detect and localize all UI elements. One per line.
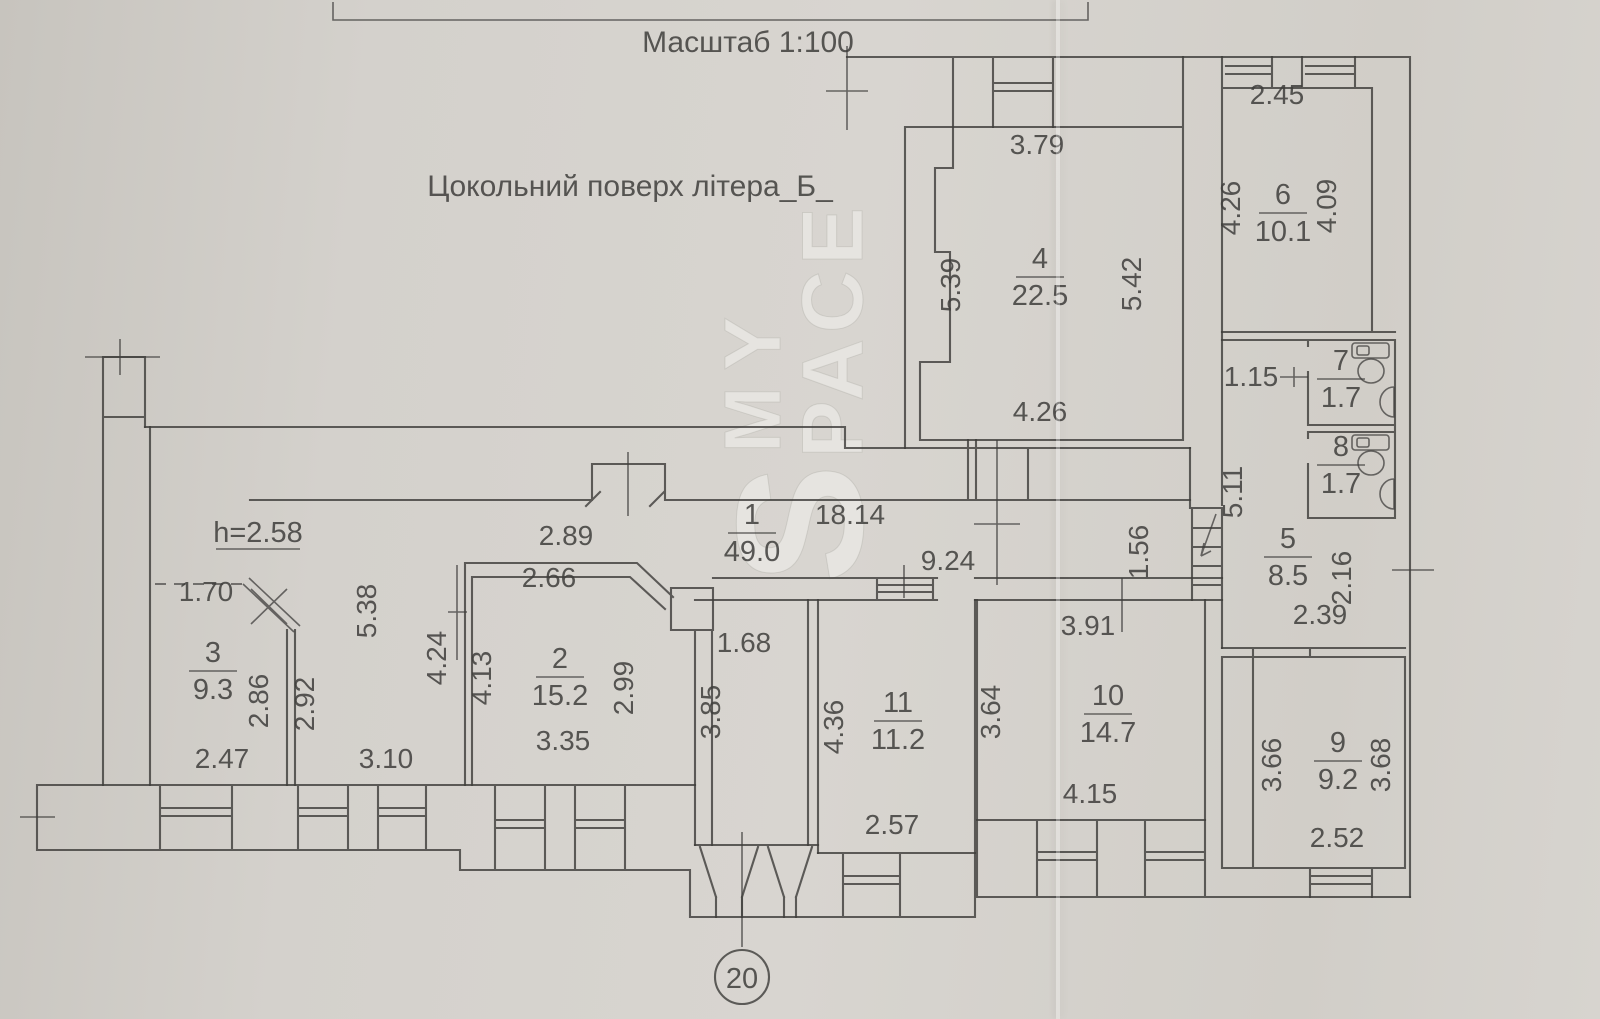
room-area: 11.2: [871, 724, 925, 756]
room-area: 8.5: [1268, 560, 1308, 592]
dimension-label: 4.09: [1311, 179, 1342, 234]
chimney-flues: [695, 845, 818, 917]
room-area: 14.7: [1080, 717, 1136, 749]
scale-title: Масштаб 1:100: [642, 26, 854, 59]
dimension-label: 9.24: [921, 545, 976, 576]
room-area: 9.3: [193, 674, 233, 706]
dimension-label: 2.39: [1293, 599, 1348, 630]
watermark-my: MY: [708, 301, 797, 453]
dimension-label: 18.14: [815, 499, 885, 530]
dimension-label: 5.42: [1116, 257, 1147, 312]
dimension-label: 4.36: [818, 700, 849, 755]
room-number: 5: [1280, 523, 1296, 555]
floor-title: Цокольний поверх літера_Б_: [427, 170, 834, 203]
dimension-label: 3.85: [695, 685, 726, 740]
toilet-icon: [1352, 343, 1389, 383]
dimension-label: 1.15: [1224, 361, 1279, 392]
room-number: 2: [552, 643, 568, 675]
room-number: 9: [1330, 727, 1346, 759]
dimension-label: 2.45: [1250, 79, 1305, 110]
floor-plan-canvas: MY S PACE: [0, 0, 1600, 1019]
dimension-label: 2.92: [289, 677, 320, 732]
sheet-edge: [333, 2, 1088, 20]
dimension-label: 3.66: [1256, 738, 1287, 793]
room-area: 10.1: [1255, 216, 1311, 248]
dimension-label: 2.52: [1310, 822, 1365, 853]
room-number: 6: [1275, 179, 1291, 211]
axis-marker-number: 20: [726, 963, 758, 995]
floor-plan-photo: MY S PACE: [0, 0, 1600, 1019]
room-number: 11: [883, 687, 913, 719]
dimension-label: 3.64: [975, 685, 1006, 740]
room-label-6: 610.1: [1255, 179, 1311, 248]
stairs-arrow: [1201, 514, 1216, 556]
dimension-label: 3.35: [536, 725, 591, 756]
dimension-label: 3.91: [1061, 610, 1116, 641]
room3-door-leaf: [243, 578, 300, 632]
dimension-label: 2.89: [539, 520, 594, 551]
room-number: 1: [744, 499, 760, 531]
room-number: 10: [1092, 680, 1124, 712]
sink-icon: [1380, 387, 1394, 417]
room-number: 4: [1032, 243, 1048, 275]
room-label-3: 39.3: [189, 637, 237, 706]
room-number: 7: [1333, 345, 1349, 377]
dimension-label: 2.47: [195, 743, 250, 774]
room-label-10: 1014.7: [1080, 680, 1136, 749]
room-area: 49.0: [724, 536, 780, 568]
dimension-label: 1.56: [1123, 525, 1154, 580]
dimension-label: 2.66: [522, 562, 577, 593]
dimension-label: 5.38: [351, 584, 382, 639]
room-area: 1.7: [1321, 382, 1361, 414]
room-area: 1.7: [1321, 468, 1361, 500]
dimension-label: 4.26: [1215, 181, 1246, 236]
room-area: 9.2: [1318, 764, 1358, 796]
dimension-label: 2.16: [1326, 551, 1357, 606]
room-label-9: 99.2: [1314, 727, 1362, 796]
dimension-label: 2.99: [608, 661, 639, 716]
dimension-label: 3.10: [359, 743, 414, 774]
dimension-label: 4.15: [1063, 778, 1118, 809]
room-label-5: 58.5: [1264, 523, 1312, 592]
dimension-label: 4.13: [466, 651, 497, 706]
dimension-label: 2.86: [243, 674, 274, 729]
dimension-label: 5.11: [1217, 466, 1248, 518]
dimension-label: 2.57: [865, 809, 920, 840]
axis-marker: 20: [715, 950, 769, 1004]
room6-walls: [1222, 57, 1395, 332]
paper-crease: [1056, 0, 1060, 1019]
room-area: 15.2: [532, 680, 588, 712]
room-number: 8: [1333, 431, 1349, 463]
dimension-label: 1.70: [179, 576, 234, 607]
room2-walls: [465, 563, 713, 845]
room-number: 3: [205, 637, 221, 669]
corridor-north-wall: [145, 427, 1190, 506]
dimension-label: 4.24: [421, 631, 452, 686]
watermark-pace: PACE: [785, 201, 881, 458]
room-label-2: 215.2: [532, 643, 588, 712]
dimension-label: 5.39: [935, 258, 966, 313]
dimension-label: 1.68: [717, 627, 772, 658]
dimension-label: 3.68: [1365, 738, 1396, 793]
room-label-11: 1111.2: [871, 687, 925, 756]
ceiling-height-note: h=2.58: [213, 517, 303, 549]
sink-icon: [1380, 479, 1394, 509]
